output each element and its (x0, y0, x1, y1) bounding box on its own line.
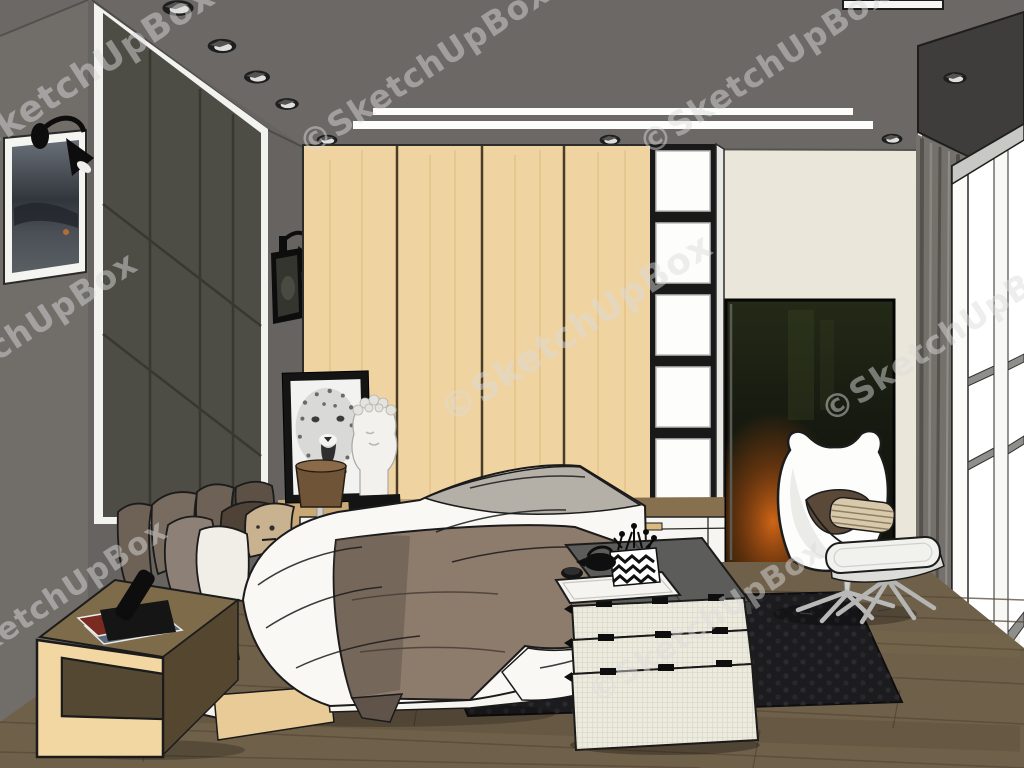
display-boxes (656, 151, 710, 498)
column-side (716, 144, 724, 505)
bedroom-render: ©SketchUpBox ©SketchUpBox ©SketchUpBox ©… (0, 0, 1024, 768)
chevron-box (610, 548, 660, 586)
led-strip-1 (373, 108, 853, 115)
scene-svg: ©SketchUpBox ©SketchUpBox ©SketchUpBox ©… (0, 0, 1024, 768)
display-shelf-column (650, 144, 724, 505)
led-strip-2 (353, 121, 873, 129)
feature-wall-art (271, 248, 303, 324)
